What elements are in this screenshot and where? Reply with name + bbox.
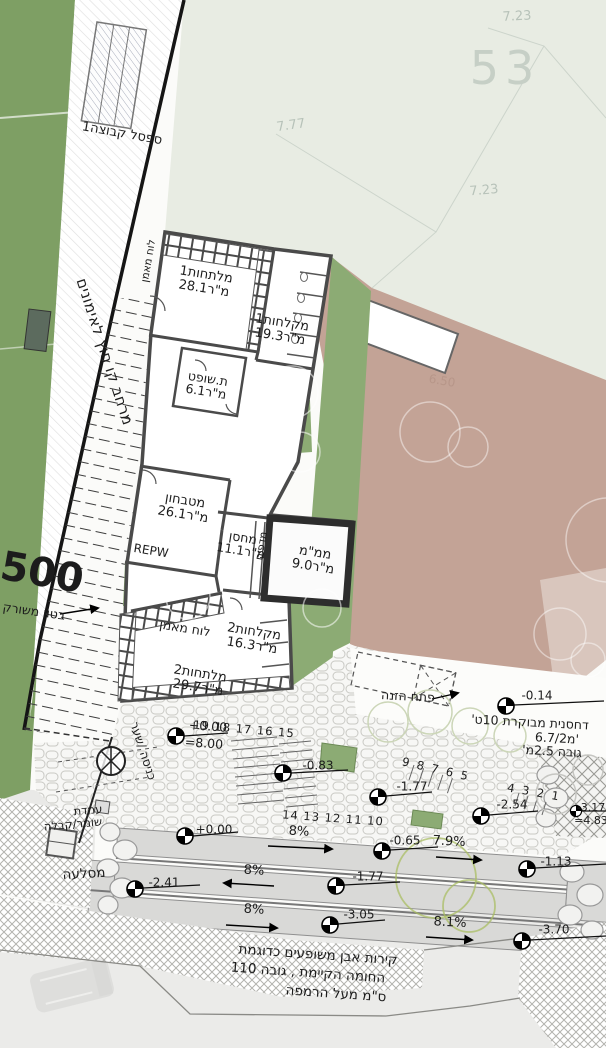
slope-a: 8%: [288, 825, 309, 840]
site-plan: ספסל קבוצה1 מרחב קו חוץ לאימונים 500 בטו…: [0, 0, 606, 1048]
level-entrance-abs: =8.00: [184, 735, 223, 751]
slope-d: 8%: [243, 903, 264, 918]
level-r241: -2.41: [148, 877, 179, 890]
level-compactor: -0.14: [521, 690, 552, 703]
level-p317: -3.17: [577, 802, 605, 814]
slope-b: 7.9%: [432, 834, 466, 849]
feed-opening-label: פתח הזנה: [381, 688, 435, 704]
level-r305: -3.05: [343, 909, 374, 922]
level-r177: -1.77: [352, 871, 383, 884]
level-p177: -1.77: [396, 781, 427, 794]
level-r065: -0.65: [389, 835, 420, 848]
field-structure: [24, 309, 51, 351]
level-r113: -1.13: [540, 856, 571, 869]
compactor-line3: גובה 2.5מ': [522, 743, 582, 759]
turnstile-icon: [97, 747, 125, 775]
slope-e: 8.1%: [433, 915, 467, 930]
level-r000: +0.00: [196, 824, 233, 837]
level-p254: -2.54: [496, 799, 527, 812]
parcel-dim-top: 7.23: [502, 9, 532, 24]
slope-c: 8%: [243, 864, 264, 879]
rockery-label: מסלעה: [62, 866, 106, 882]
parcel-number: 53: [470, 44, 541, 92]
level-p483: =4.83: [574, 815, 606, 827]
room-referee: ת.שופט 6.1מ"ר: [185, 369, 230, 401]
level-r370: -3.70: [538, 924, 569, 937]
site-plan-drawing: [0, 0, 606, 1048]
parcel-dim-mid: 7.23: [469, 183, 499, 199]
level-p083: -0.83: [302, 760, 333, 773]
